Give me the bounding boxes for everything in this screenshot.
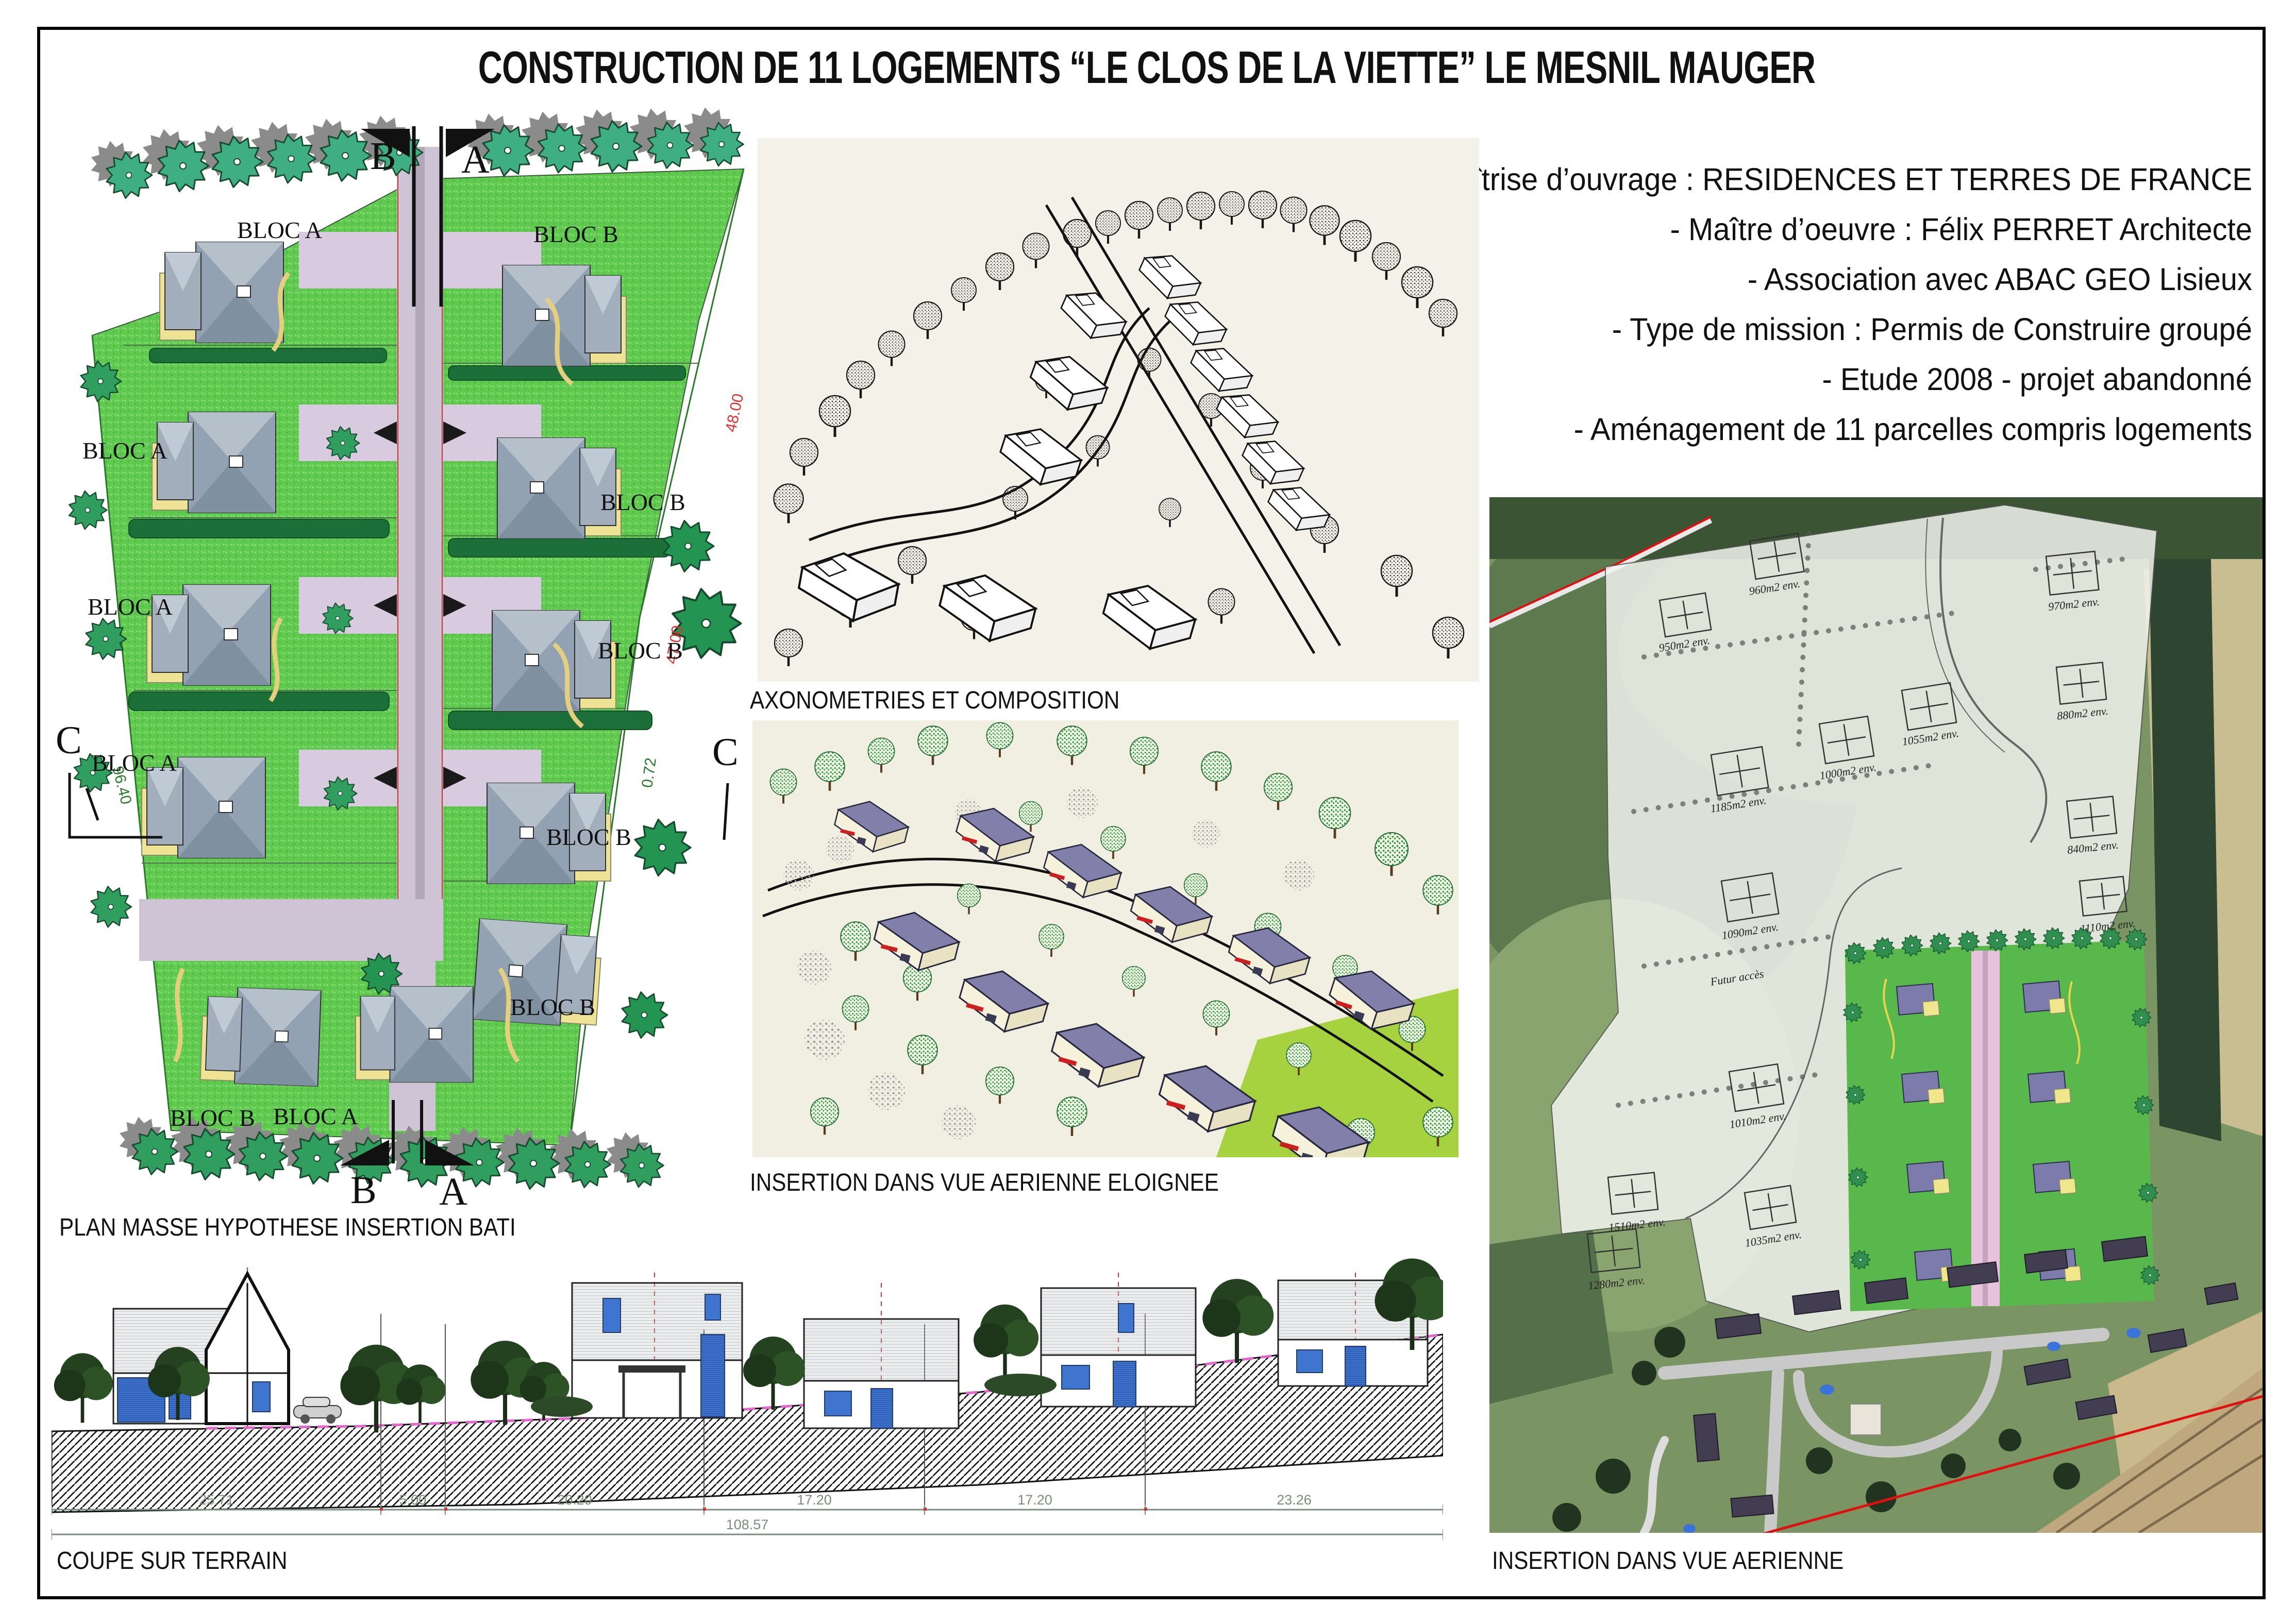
dim-total: 108.57	[726, 1517, 769, 1532]
bloc-b-label: BLOC B	[510, 994, 595, 1020]
section-letter-a-top: A	[461, 138, 490, 181]
bloc-b-label: BLOC B	[598, 637, 683, 664]
axonometry-bw-drawing	[758, 138, 1479, 682]
bloc-a-label: BLOC A	[273, 1103, 358, 1129]
house-elevation-4	[1041, 1288, 1196, 1407]
bloc-a-label: BLOC A	[237, 217, 322, 243]
presentation-board: { "title": "CONSTRUCTION DE 11 LOGEMENTS…	[0, 0, 2296, 1623]
section-label: COUPE SUR TERRAIN	[57, 1547, 319, 1575]
plan-masse-label: PLAN MASSE HYPOTHESE INSERTION BATI	[59, 1213, 578, 1242]
bloc-b-label: BLOC B	[600, 489, 685, 515]
bloc-b-label: BLOC B	[533, 221, 618, 247]
insertion-far-label: INSERTION DANS VUE AERIENNE ELOIGNEE	[750, 1169, 1283, 1197]
axonometry-color-drawing	[752, 720, 1459, 1157]
axonometry-label: AXONOMETRIES ET COMPOSITION	[750, 686, 1170, 715]
dim-5: 17.20	[1017, 1492, 1052, 1508]
svg-text:C: C	[712, 731, 739, 774]
dim-right-small: 0.72	[639, 757, 660, 789]
bloc-b-label: BLOC B	[546, 824, 631, 850]
section-letter-b-top: B	[370, 134, 396, 178]
bloc-a-label: BLOC A	[88, 594, 173, 620]
bloc-b-label: BLOC B	[170, 1105, 255, 1131]
section-marker-c-right: C	[712, 731, 739, 840]
dim-6: 23.26	[1277, 1492, 1312, 1508]
car	[294, 1397, 341, 1424]
section-letter-a-bottom: A	[439, 1170, 467, 1213]
plan-masse-drawing: B A B A C C 96.40 48.00 47.00 0.72 BLOC …	[52, 103, 752, 1216]
bloc-a-label: BLOC A	[92, 750, 177, 776]
section-letter-b-bottom: B	[350, 1169, 377, 1212]
aerial-label: INSERTION DANS VUE AERIENNE	[1492, 1547, 1891, 1575]
house-elevation-3	[804, 1319, 959, 1428]
dim-4: 17.20	[797, 1492, 832, 1508]
svg-text:C: C	[56, 719, 82, 762]
dim-right-top: 48.00	[723, 392, 747, 433]
house-elevation-1	[113, 1274, 341, 1424]
page-title: CONSTRUCTION DE 11 LOGEMENTS “LE CLOS DE…	[39, 41, 2255, 94]
dim-3: 20.20	[557, 1492, 592, 1508]
terrain-section-drawing: 25.71 5.00 20.20 17.20 17.20 23.26 108.5…	[52, 1252, 1443, 1541]
dim-2: 5.00	[399, 1492, 427, 1508]
house-elevation-2	[572, 1283, 742, 1418]
bloc-a-label: BLOC A	[82, 437, 167, 464]
dim-1: 25.71	[199, 1492, 234, 1508]
aerial-view: 960m2 env. 950m2 env. 970m2 env. 1185m2 …	[1489, 497, 2263, 1533]
